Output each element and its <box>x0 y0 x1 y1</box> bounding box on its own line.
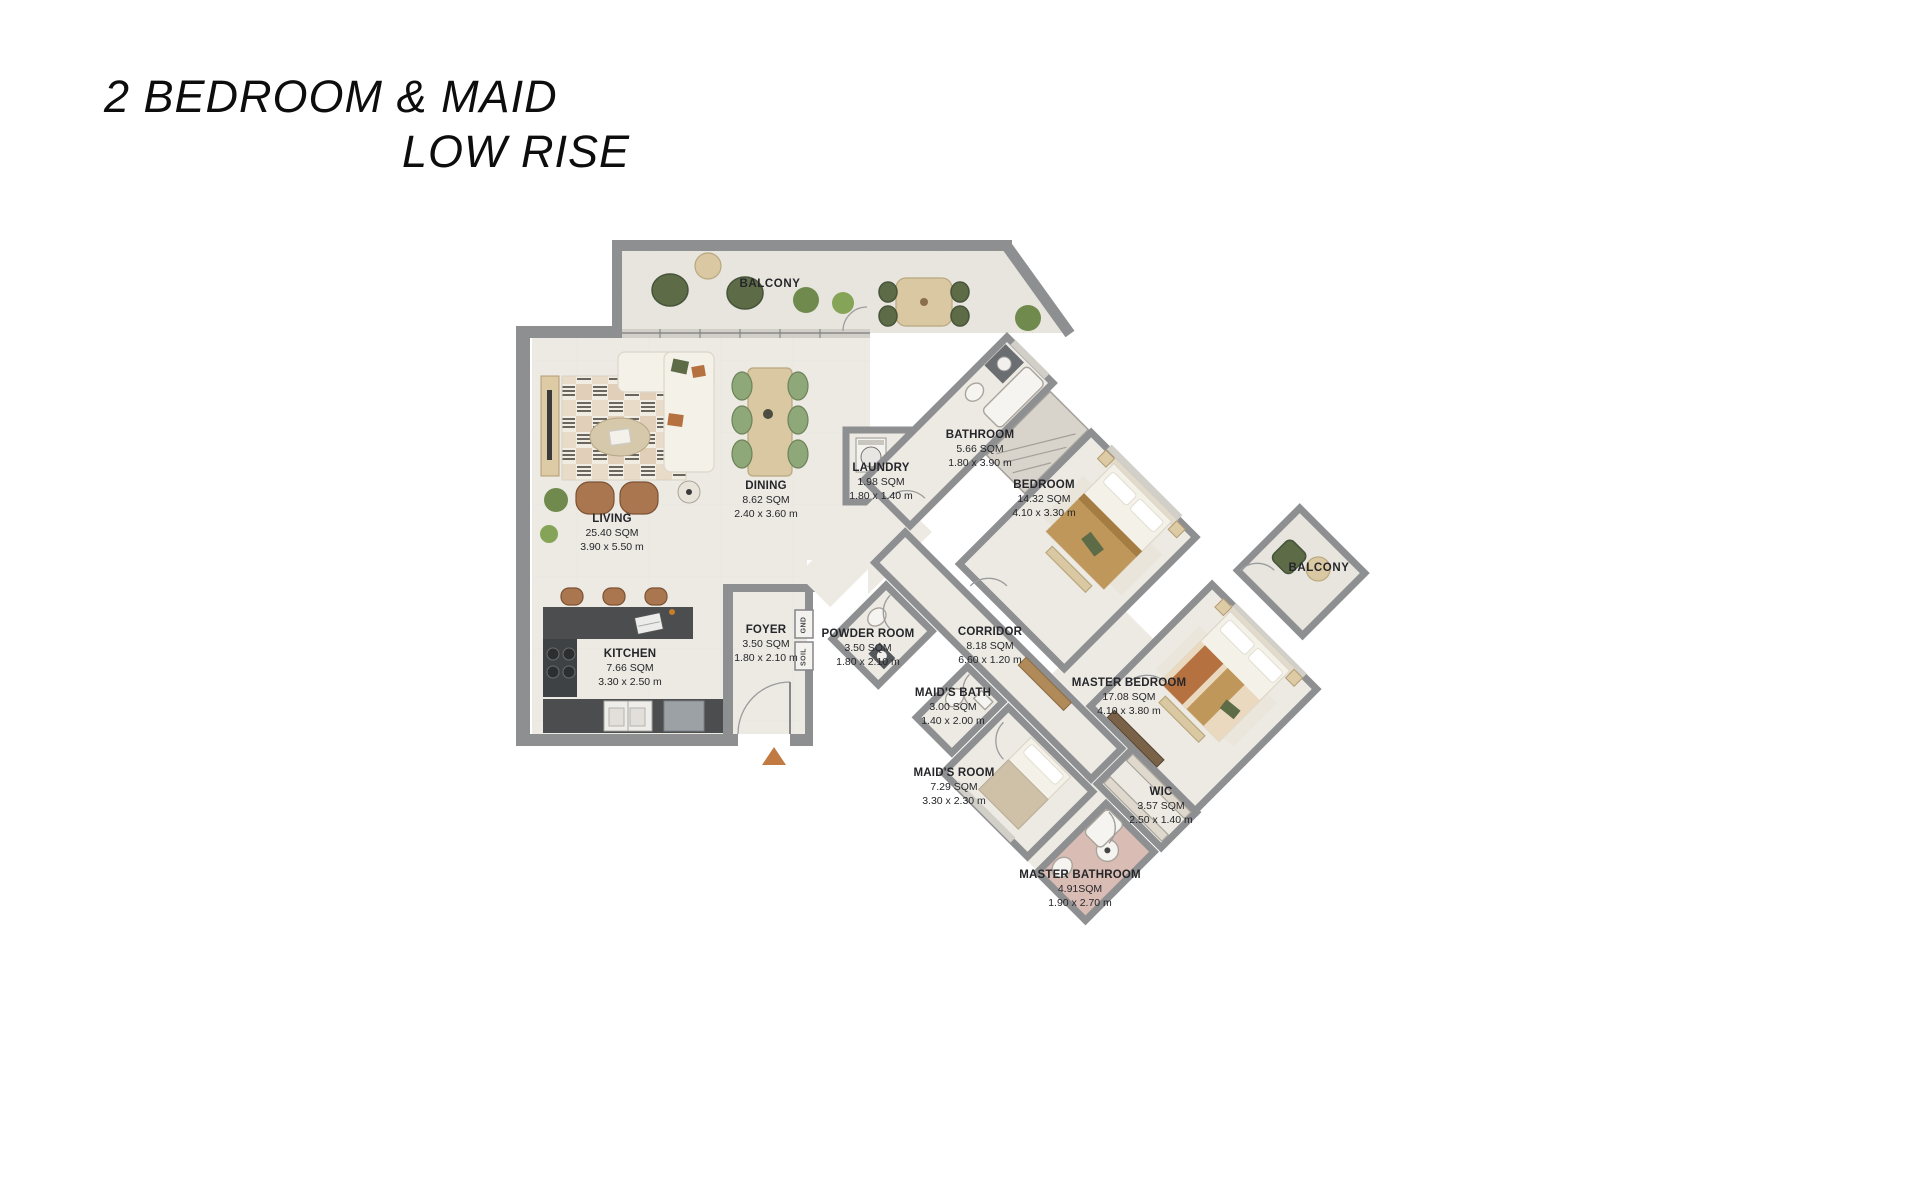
dining-furniture <box>732 368 808 476</box>
balcony-right-label: BALCONY <box>1288 562 1349 574</box>
label-corridor: CORRIDOR 8.18 SQM 6.60 x 1.20 m <box>958 625 1022 667</box>
label-master-bedroom: MASTER BEDROOM 17.08 SQM 4.10 x 3.80 m <box>1072 676 1187 718</box>
label-bathroom: BATHROOM 5.66 SQM 1.80 x 3.90 m <box>946 428 1014 470</box>
label-wic: WIC 3.57 SQM 2.50 x 1.40 m <box>1129 785 1193 827</box>
dining-table <box>748 368 792 476</box>
appliance <box>664 701 704 731</box>
plant-icon <box>793 287 819 313</box>
label-maids-bath: MAID'S BATH 3.00 SQM 1.40 x 2.00 m <box>915 686 991 728</box>
floorplan-page: 2 BEDROOM & MAID LOW RISE BALCONY BALCON… <box>0 0 1920 1191</box>
label-master-bathroom: MASTER BATHROOM 4.91SQM 1.90 x 2.70 m <box>1019 868 1141 910</box>
page-title: 2 BEDROOM & MAID LOW RISE <box>104 70 630 180</box>
title-line2: LOW RISE <box>104 125 630 180</box>
armchair <box>576 482 614 514</box>
plant-icon <box>540 525 558 543</box>
label-powder-room: POWDER ROOM 3.50 SQM 1.80 x 2.10 m <box>822 627 915 669</box>
label-bedroom: BEDROOM 14.32 SQM 4.10 x 3.30 m <box>1012 478 1076 520</box>
plant-icon <box>544 488 568 512</box>
title-line1: 2 BEDROOM & MAID <box>104 71 558 122</box>
plant-icon <box>1015 305 1041 331</box>
shaft-gnd-label: GND <box>801 617 808 634</box>
balcony-top-label: BALCONY <box>739 278 800 290</box>
label-kitchen: KITCHEN 7.66 SQM 3.30 x 2.50 m <box>598 647 662 689</box>
label-laundry: LAUNDRY 1.98 SQM 1.80 x 1.40 m <box>849 461 913 503</box>
label-living: LIVING 25.40 SQM 3.90 x 5.50 m <box>580 512 644 554</box>
label-dining: DINING 8.62 SQM 2.40 x 3.60 m <box>734 479 798 521</box>
label-foyer: FOYER 3.50 SQM 1.80 x 2.10 m <box>734 623 798 665</box>
armchair <box>620 482 658 514</box>
plant-icon <box>832 292 854 314</box>
label-maids-room: MAID'S ROOM 7.29 SQM 3.30 x 2.30 m <box>914 766 995 808</box>
shaft-soil-label: SOIL <box>801 648 808 666</box>
entry-arrow-icon <box>762 747 786 765</box>
